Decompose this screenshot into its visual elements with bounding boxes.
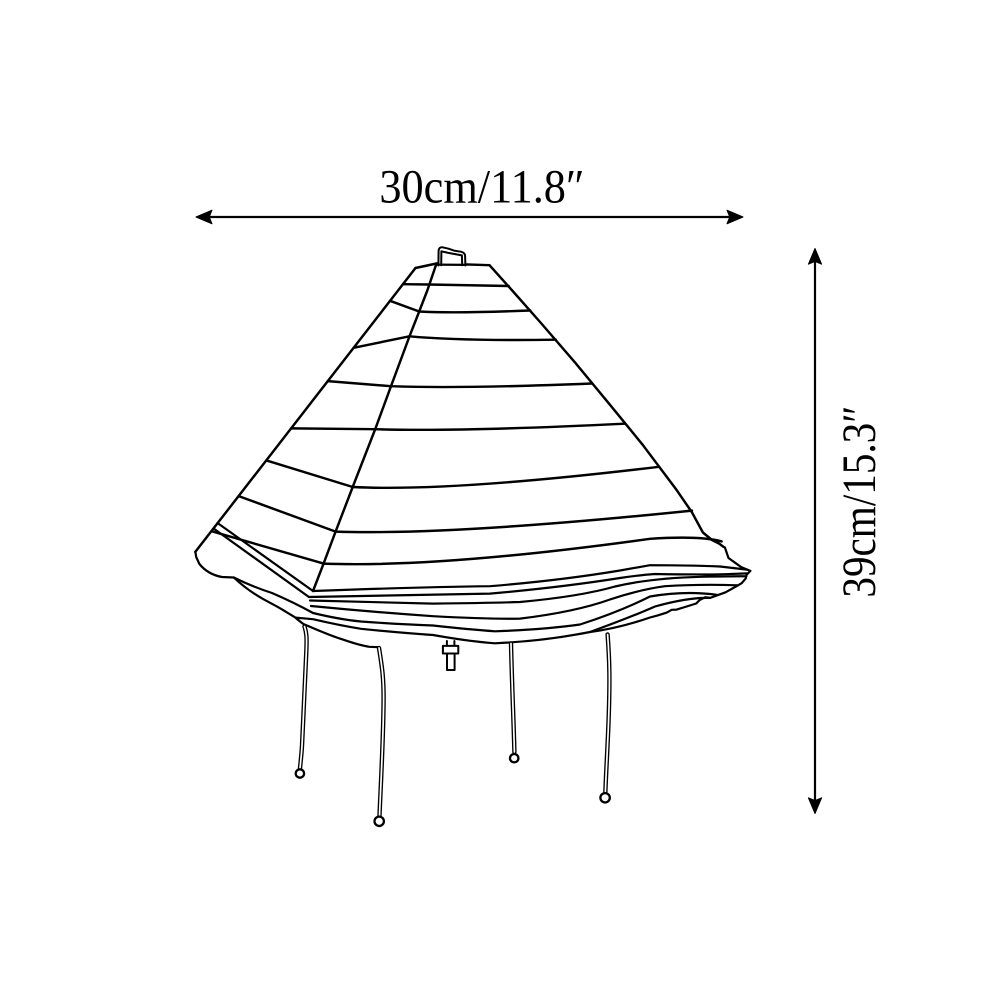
- svg-text:39cm/15.3″: 39cm/15.3″: [833, 406, 886, 598]
- svg-text:30cm/11.8″: 30cm/11.8″: [379, 161, 584, 214]
